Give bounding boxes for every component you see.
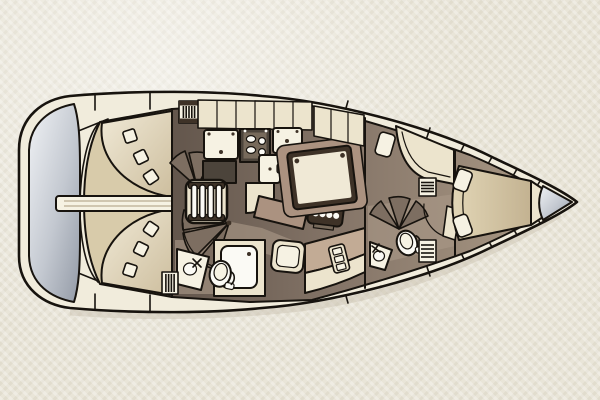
companionway-ladder xyxy=(186,180,227,223)
companionway-hatch xyxy=(179,101,199,123)
saloon-table-top xyxy=(292,151,351,204)
rack-slot xyxy=(332,247,342,255)
ladder-rung xyxy=(200,185,206,218)
ladder-rung xyxy=(208,185,214,218)
aft-head xyxy=(162,240,265,296)
forward-head-shelf xyxy=(419,240,436,262)
aft-head-shelf xyxy=(162,272,178,294)
stove-burner xyxy=(259,138,266,145)
stove-burner xyxy=(246,147,255,154)
rack-slot xyxy=(334,255,344,263)
forward-shelf-upper xyxy=(419,178,436,196)
floor-plan-canvas xyxy=(0,0,600,400)
rack-slot xyxy=(336,263,346,271)
ladder-rung xyxy=(192,185,198,218)
yacht-floor-plan xyxy=(0,0,600,400)
nav-seat xyxy=(270,239,305,273)
ladder-rung xyxy=(216,185,222,218)
galley-sink xyxy=(204,130,238,159)
saloon-table-group xyxy=(276,136,368,218)
stove-burner xyxy=(246,136,255,143)
cockpit-table xyxy=(56,196,190,211)
